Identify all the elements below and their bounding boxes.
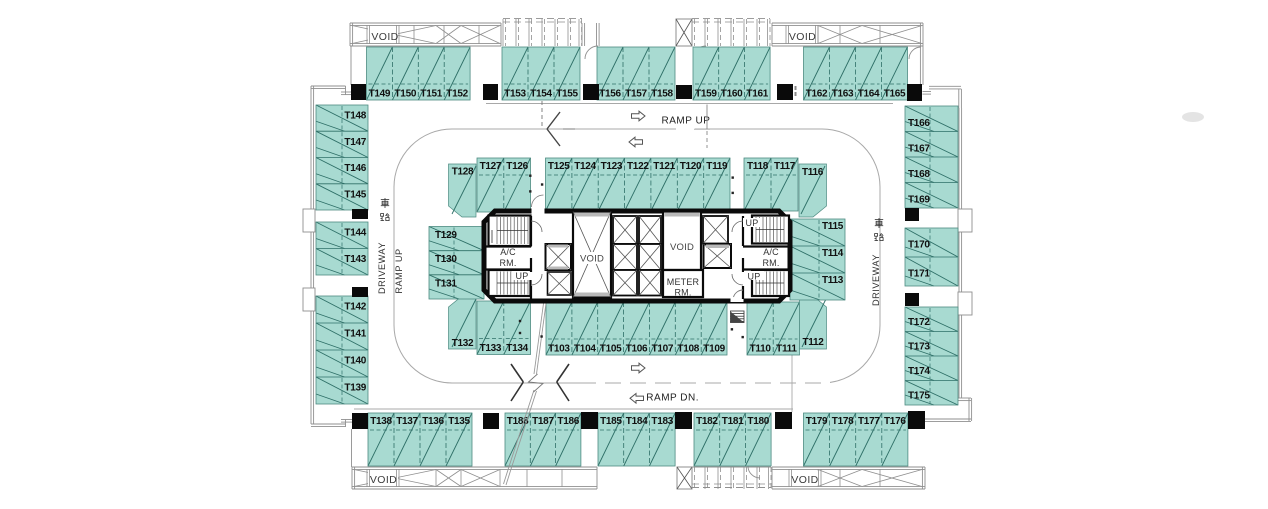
svg-text:T173: T173	[908, 341, 930, 352]
svg-text:T152: T152	[446, 89, 468, 100]
svg-text:T156: T156	[599, 89, 621, 100]
svg-text:DRIVEWAY: DRIVEWAY	[871, 254, 881, 306]
svg-text:T117: T117	[774, 161, 796, 172]
svg-text:A/C: A/C	[500, 247, 516, 257]
svg-text:T135: T135	[448, 416, 470, 427]
svg-text:T146: T146	[344, 163, 366, 174]
svg-text:RM.: RM.	[762, 258, 779, 268]
svg-text:A/C: A/C	[763, 247, 779, 257]
svg-text:T137: T137	[396, 416, 418, 427]
svg-text:T166: T166	[908, 118, 930, 129]
svg-text:T112: T112	[802, 337, 824, 348]
svg-text:T136: T136	[422, 416, 444, 427]
svg-text:T119: T119	[706, 161, 728, 172]
svg-text:T147: T147	[344, 137, 366, 148]
svg-text:UP: UP	[748, 272, 761, 282]
svg-text:T120: T120	[680, 161, 702, 172]
svg-text:VOID: VOID	[580, 254, 604, 265]
svg-text:T140: T140	[344, 356, 366, 367]
svg-text:T111: T111	[776, 344, 797, 355]
svg-text:T123: T123	[601, 161, 623, 172]
svg-text:T107: T107	[652, 344, 674, 355]
svg-text:T145: T145	[344, 189, 366, 200]
svg-text:T115: T115	[822, 221, 844, 232]
svg-text:T150: T150	[395, 89, 417, 100]
svg-text:T174: T174	[908, 366, 930, 377]
svg-text:T157: T157	[625, 89, 647, 100]
svg-text:T128: T128	[452, 167, 474, 178]
svg-text:T179: T179	[806, 416, 828, 427]
svg-text:T170: T170	[908, 240, 930, 251]
svg-text:T116: T116	[802, 167, 824, 178]
svg-text:T110: T110	[750, 344, 772, 355]
svg-text:RAMP UP: RAMP UP	[394, 248, 404, 293]
svg-text:T172: T172	[908, 317, 930, 328]
svg-text:T103: T103	[548, 344, 570, 355]
svg-text:T130: T130	[435, 254, 457, 265]
svg-text:T109: T109	[703, 344, 725, 355]
svg-text:T183: T183	[651, 416, 673, 427]
svg-text:METER: METER	[667, 277, 700, 287]
svg-text:T185: T185	[600, 416, 622, 427]
svg-text:RM.: RM.	[499, 258, 516, 268]
svg-text:T158: T158	[651, 89, 673, 100]
svg-text:UP: UP	[746, 218, 759, 228]
svg-text:T104: T104	[574, 344, 596, 355]
svg-text:T165: T165	[884, 89, 906, 100]
svg-text:T162: T162	[806, 89, 828, 100]
svg-text:T164: T164	[858, 89, 880, 100]
svg-text:T131: T131	[435, 278, 457, 289]
svg-text:T105: T105	[600, 344, 622, 355]
svg-text:T149: T149	[369, 89, 391, 100]
svg-text:DRIVEWAY: DRIVEWAY	[377, 242, 387, 294]
svg-text:T144: T144	[344, 228, 366, 239]
svg-text:RAMP UP: RAMP UP	[662, 115, 711, 126]
svg-text:T180: T180	[747, 416, 769, 427]
svg-text:VOID: VOID	[370, 474, 397, 486]
svg-text:T151: T151	[420, 89, 442, 100]
svg-text:VOID: VOID	[789, 31, 816, 43]
svg-text:T114: T114	[822, 248, 844, 259]
svg-text:T125: T125	[548, 161, 570, 172]
svg-text:T181: T181	[722, 416, 744, 427]
svg-text:T168: T168	[908, 169, 930, 180]
svg-text:T186: T186	[557, 416, 579, 427]
svg-text:T122: T122	[627, 161, 649, 172]
svg-text:T124: T124	[574, 161, 596, 172]
svg-text:RAMP DN.: RAMP DN.	[646, 393, 699, 404]
svg-text:VOID: VOID	[670, 242, 694, 253]
svg-text:T153: T153	[504, 89, 526, 100]
svg-text:T159: T159	[695, 89, 717, 100]
svg-text:T143: T143	[344, 254, 366, 265]
svg-text:T127: T127	[480, 161, 502, 172]
svg-text:T171: T171	[908, 269, 930, 280]
svg-text:UP: UP	[516, 271, 529, 281]
svg-text:T132: T132	[452, 338, 474, 349]
svg-text:T118: T118	[747, 161, 769, 172]
svg-text:T121: T121	[653, 161, 675, 172]
svg-text:T178: T178	[832, 416, 854, 427]
svg-text:T169: T169	[908, 194, 930, 205]
svg-text:T138: T138	[370, 416, 392, 427]
svg-text:T106: T106	[626, 344, 648, 355]
svg-text:T175: T175	[908, 390, 930, 401]
svg-text:T126: T126	[506, 161, 528, 172]
svg-text:T155: T155	[556, 89, 578, 100]
svg-text:T160: T160	[721, 89, 743, 100]
svg-text:T177: T177	[858, 416, 880, 427]
svg-text:T133: T133	[480, 343, 502, 354]
svg-text:T161: T161	[746, 89, 768, 100]
svg-text:VOID: VOID	[371, 31, 398, 43]
svg-text:T188: T188	[507, 416, 529, 427]
svg-text:VOID: VOID	[791, 474, 818, 486]
svg-text:T134: T134	[506, 343, 528, 354]
svg-text:T184: T184	[626, 416, 648, 427]
svg-text:T141: T141	[344, 329, 366, 340]
svg-text:T142: T142	[344, 302, 366, 313]
svg-text:T139: T139	[344, 383, 366, 394]
svg-text:T108: T108	[677, 344, 699, 355]
svg-text:RM.: RM.	[674, 288, 691, 298]
svg-text:T187: T187	[532, 416, 554, 427]
svg-text:T176: T176	[884, 416, 906, 427]
svg-text:T154: T154	[530, 89, 552, 100]
svg-text:T167: T167	[908, 143, 930, 154]
svg-text:T129: T129	[435, 230, 457, 241]
svg-text:T182: T182	[696, 416, 718, 427]
svg-text:T148: T148	[344, 111, 366, 122]
svg-text:T113: T113	[822, 275, 844, 286]
svg-text:T163: T163	[832, 89, 854, 100]
